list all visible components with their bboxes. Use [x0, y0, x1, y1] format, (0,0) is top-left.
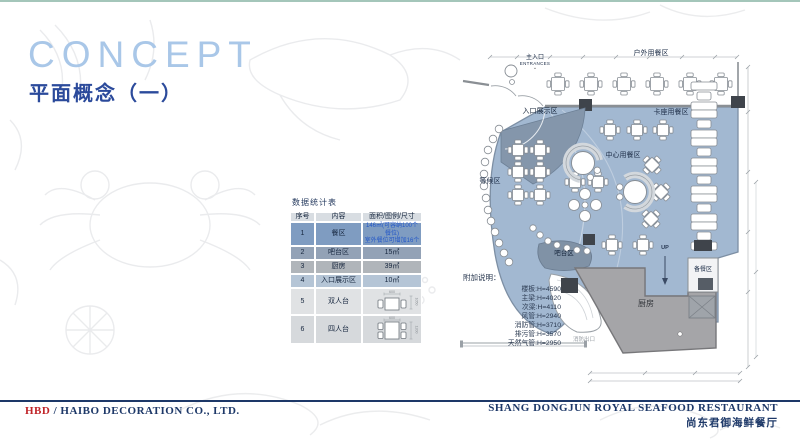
stats-row-no: 6	[290, 315, 315, 344]
stats-row-value: 6001050	[362, 288, 422, 315]
bar-stool-icon	[530, 225, 536, 231]
four-seat-table-icon	[646, 73, 668, 95]
header-size: 面积/图例/尺寸	[362, 212, 422, 222]
chair-icon	[587, 174, 593, 180]
label-waiting-area: 等候区	[475, 178, 505, 186]
two-seat-table-icon: 6001050	[365, 290, 419, 313]
column	[561, 278, 578, 293]
planter-icon	[569, 200, 580, 211]
waiting-chair-icon	[495, 239, 503, 247]
stats-row-value: 39㎡	[362, 260, 422, 274]
stats-row-value: 6001200	[362, 315, 422, 344]
plan-note-item: 消防管:H=3710	[463, 321, 561, 330]
stats-row-no: 4	[290, 274, 315, 288]
stats-row-content: 餐区	[315, 222, 362, 246]
label-main-entrance: 主入口 ENTRANCES ⌄	[513, 55, 557, 70]
footer-company: HBD / HAIBO DECORATION CO., LTD.	[25, 405, 240, 417]
statistics-table-header: 序号 内容 面积/图例/尺寸	[290, 212, 426, 222]
stats-row: 6四人台6001200	[290, 315, 426, 344]
header-no: 序号	[290, 212, 315, 222]
round-table-icon	[624, 181, 647, 204]
stats-row: 5双人台6001050	[290, 288, 426, 315]
svg-text:600: 600	[389, 316, 395, 320]
floor-plan: 主入口 ENTRANCES ⌄ 户外用餐区 入口展示区 卡座用餐区 中心用餐区 …	[455, 22, 777, 400]
four-seat-table-icon	[547, 73, 569, 95]
four-seat-table-icon	[613, 73, 635, 95]
label-entry-display: 入口展示区	[511, 108, 569, 116]
stats-row: 4入口展示区10㎡	[290, 274, 426, 288]
waiting-chair-icon	[489, 135, 497, 143]
entrance-stool-icon	[510, 80, 515, 85]
statistics-table-title: 数据统计表	[292, 197, 426, 208]
planter-icon	[580, 211, 591, 222]
wall	[463, 81, 489, 85]
bar-stool-icon	[537, 232, 543, 238]
chair-icon	[594, 167, 600, 173]
stats-row-value: 146㎡(可容纳100个餐位)室外餐位可增加16个	[362, 222, 422, 246]
waiting-chair-icon	[487, 217, 495, 225]
label-booth-dining: 卡座用餐区	[649, 109, 693, 117]
stats-row-value: 10㎡	[362, 274, 422, 288]
page-subtitle: 平面概念（一）	[29, 77, 183, 106]
statistics-table-rows: 1餐区146㎡(可容纳100个餐位)室外餐位可增加16个2吧台区15㎡3厨房39…	[290, 222, 426, 344]
svg-text:1200: 1200	[415, 326, 419, 334]
waiting-chair-icon	[500, 249, 508, 257]
stats-row-content: 四人台	[315, 315, 362, 344]
stats-row-no: 1	[290, 222, 315, 246]
label-kitchen: 厨房	[631, 300, 661, 309]
page-title: CONCEPT	[28, 36, 258, 73]
stats-row-no: 5	[290, 288, 315, 315]
entrance-arrow-icon: ⌄	[513, 67, 557, 71]
stats-row-no: 2	[290, 246, 315, 260]
planter-icon	[591, 200, 602, 211]
waiting-chair-icon	[495, 125, 503, 133]
floor-drain-icon	[678, 332, 682, 336]
header-content: 内容	[315, 212, 362, 222]
footer-company-name: / HAIBO DECORATION CO., LTD.	[50, 405, 239, 417]
footer-company-abbr: HBD	[25, 405, 50, 417]
waiting-chair-icon	[484, 206, 492, 214]
column	[583, 234, 595, 245]
round-table-icon	[572, 152, 595, 175]
label-outdoor-dining: 户外用餐区	[625, 50, 677, 58]
waiting-chair-icon	[491, 228, 499, 236]
bar-stool-icon	[554, 242, 560, 248]
four-seat-table-icon	[580, 73, 602, 95]
stats-row-content: 厨房	[315, 260, 362, 274]
footer-restaurant-en: SHANG DONGJUN ROYAL SEAFOOD RESTAURANT	[488, 402, 778, 414]
waiting-chair-icon	[484, 146, 492, 154]
bar-stool-icon	[545, 238, 551, 244]
footer-restaurant-cn: 尚东君御海鲜餐厅	[488, 415, 778, 430]
label-bar-area: 吧台区	[545, 250, 583, 257]
footer-restaurant: SHANG DONGJUN ROYAL SEAFOOD RESTAURANT 尚…	[488, 402, 778, 430]
statistics-table: 数据统计表 序号 内容 面积/图例/尺寸 1餐区146㎡(可容纳100个餐位)室…	[290, 197, 426, 344]
label-prep-area: 备餐区	[687, 267, 719, 274]
column	[731, 96, 745, 108]
planter-icon	[580, 189, 591, 200]
waiting-chair-icon	[481, 158, 489, 166]
plan-note-item: 次梁:H=4110	[463, 303, 561, 312]
stats-row-no: 3	[290, 260, 315, 274]
column	[698, 278, 713, 290]
door-arc-icon	[491, 86, 516, 96]
label-stairs-up: UP	[655, 245, 675, 251]
bar-stool-icon	[584, 248, 590, 254]
svg-text:1050: 1050	[415, 298, 419, 306]
label-center-dining: 中心用餐区	[599, 152, 647, 160]
waiting-chair-icon	[480, 170, 488, 178]
slide: CONCEPT 平面概念（一） 数据统计表 序号 内容 面积/图例/尺寸 1餐区…	[0, 0, 800, 440]
chair-icon	[617, 184, 623, 190]
waiting-chair-icon	[505, 258, 513, 266]
plan-notes-items: 楼板:H=4590主梁:H=4020次梁:H=4110风管:H=2940消防管:…	[463, 285, 561, 348]
svg-text:600: 600	[389, 290, 395, 294]
plan-note-item: 排污管:H=3570	[463, 330, 561, 339]
column	[694, 240, 712, 251]
plan-note-item: 楼板:H=4590	[463, 285, 561, 294]
booth-seat-icon	[691, 82, 717, 110]
planter-icon	[582, 202, 588, 208]
stats-row-content: 双人台	[315, 288, 362, 315]
plan-note-item: 主梁:H=4020	[463, 294, 561, 303]
plan-note-item: 风管:H=2940	[463, 312, 561, 321]
stats-row: 2吧台区15㎡	[290, 246, 426, 260]
plan-notes-title: 附加说明：	[463, 272, 561, 283]
stats-row-value: 15㎡	[362, 246, 422, 260]
stats-row-content: 吧台区	[315, 246, 362, 260]
four-seat-table-icon: 6001200	[365, 316, 419, 343]
chair-icon	[617, 194, 623, 200]
waiting-chair-icon	[482, 194, 490, 202]
door-arc-icon	[518, 96, 543, 106]
stats-row: 1餐区146㎡(可容纳100个餐位)室外餐位可增加16个	[290, 222, 426, 246]
plan-note-item: 天然气管:H=2950	[463, 339, 561, 348]
stats-row-content: 入口展示区	[315, 274, 362, 288]
plan-notes: 附加说明： 楼板:H=4590主梁:H=4020次梁:H=4110风管:H=29…	[463, 272, 561, 348]
stats-row: 3厨房39㎡	[290, 260, 426, 274]
label-fire-exit: 消防出口	[561, 337, 607, 343]
